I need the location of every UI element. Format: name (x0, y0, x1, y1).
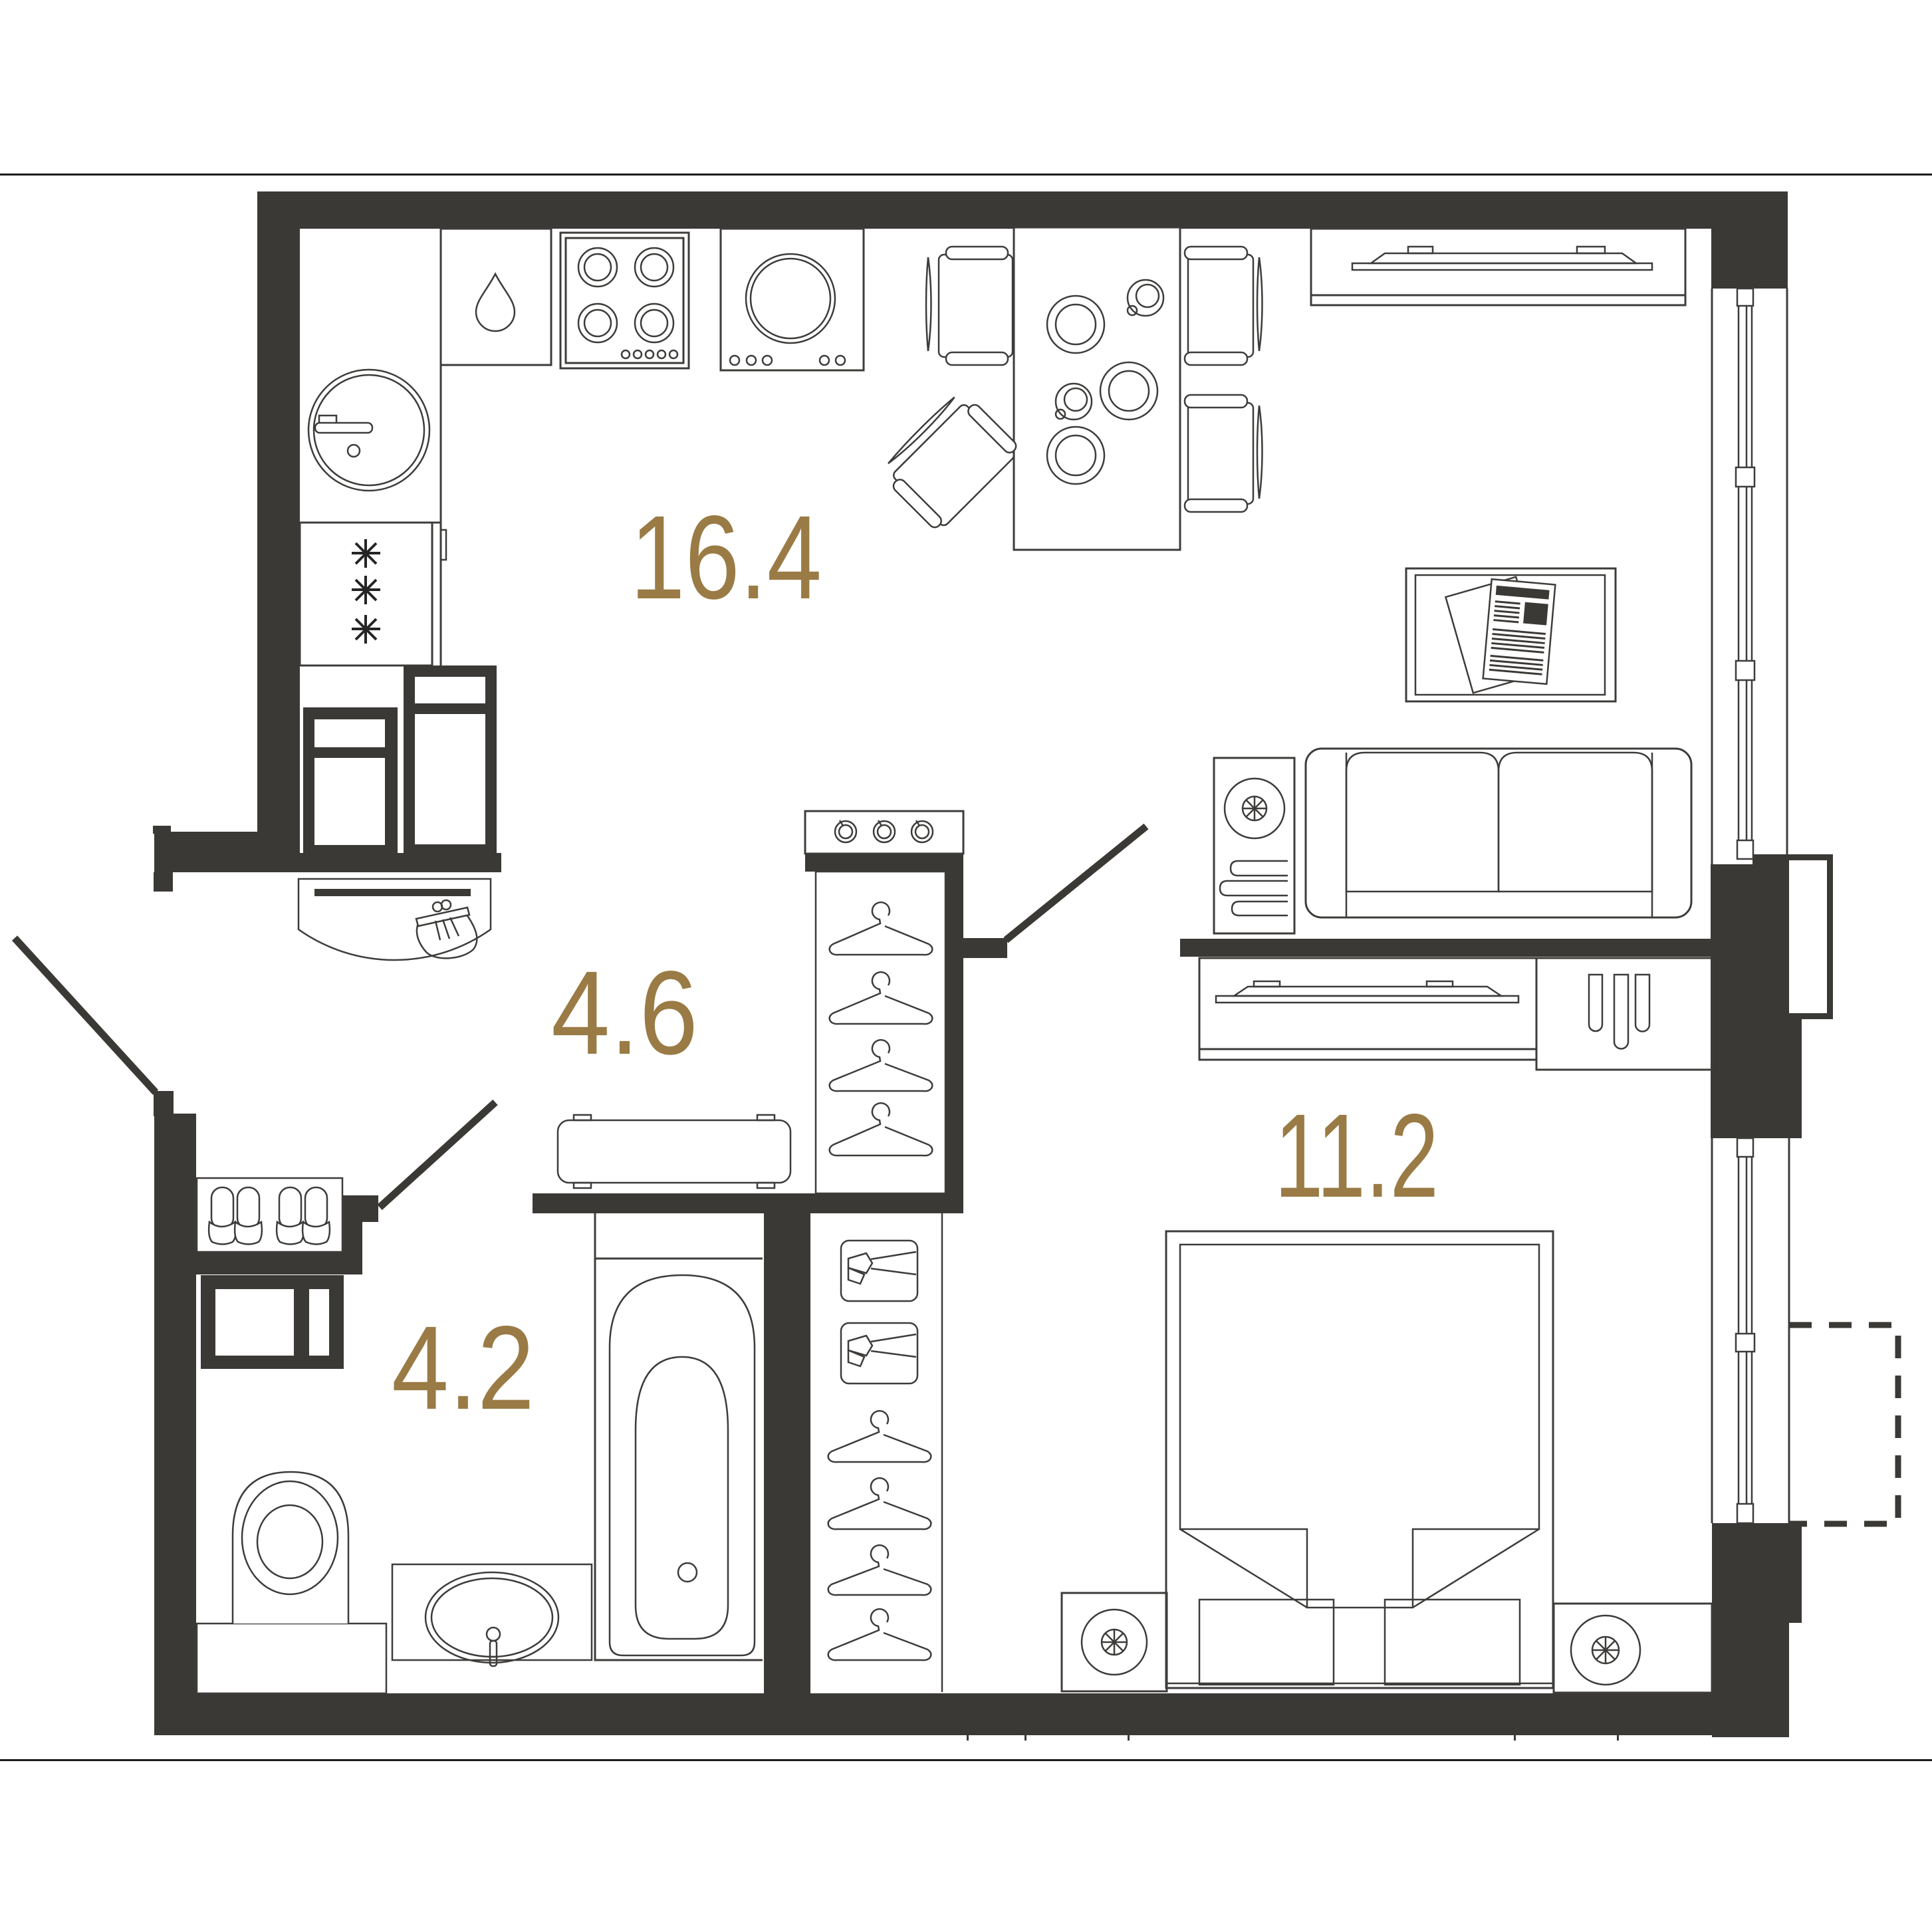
svg-text:11.2: 11.2 (1274, 1089, 1439, 1222)
svg-text:16.4: 16.4 (630, 491, 822, 624)
svg-text:4.6: 4.6 (551, 946, 698, 1079)
svg-text:4.2: 4.2 (392, 1301, 535, 1434)
